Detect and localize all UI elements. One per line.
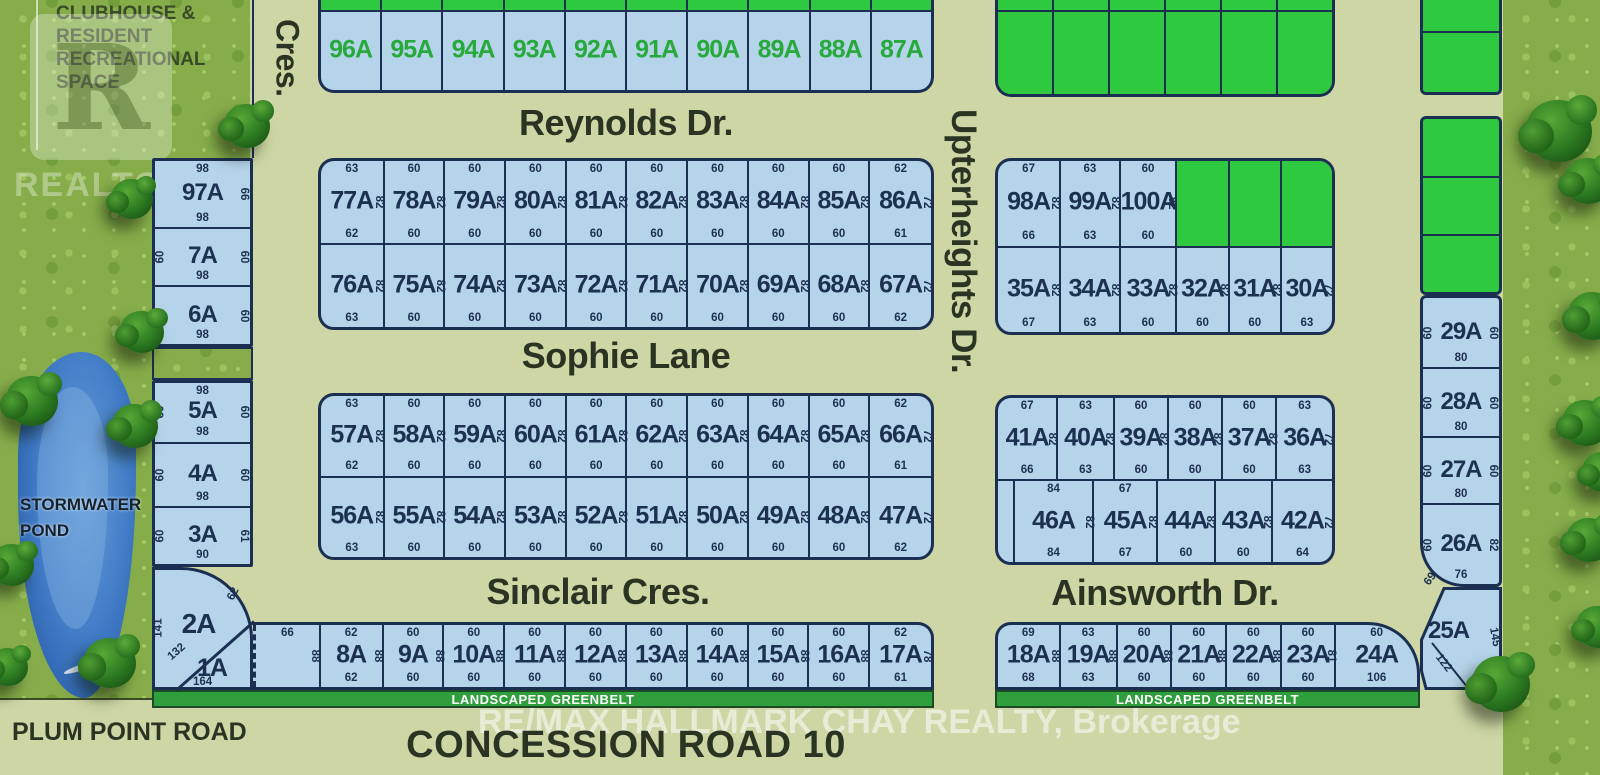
lot-90a: 90A	[686, 12, 747, 90]
lot-dimension: 60	[1177, 318, 1227, 330]
lot-cell	[1423, 234, 1499, 292]
greenbelt-strip-row	[321, 0, 931, 10]
tree-icon	[111, 179, 153, 219]
lot-cell	[1220, 0, 1276, 10]
lot-row-98a-100a: 6798A82666399A826360100A8260	[998, 161, 1332, 246]
tree-icon	[0, 648, 28, 686]
lot-33a: 33A8260	[1119, 248, 1176, 333]
lot-dimension: 60	[688, 313, 747, 325]
lot-dimension: 63	[1277, 465, 1332, 477]
lot-dimension: 60	[385, 313, 444, 325]
lot-col-29a-26a: 29A60608028A60608027A60608026A608276	[1423, 298, 1499, 584]
lot-col-green	[1423, 119, 1499, 292]
block-18a-24a: 6918A88686319A88636020A88606021A88606022…	[995, 622, 1420, 690]
block-98a-30a: 6798A82666399A826360100A8260 35A826734A8…	[995, 158, 1335, 335]
lot-81a: 6081A8260	[565, 161, 626, 243]
lot-dimension: 72	[921, 196, 933, 209]
lot-col-5a-3a: 985A6060984A6060983A606190	[155, 383, 250, 564]
lot-dimension: 60	[810, 313, 869, 325]
lot-dimension: 60	[238, 309, 250, 322]
lot-58a: 6058A8260	[383, 396, 444, 476]
lot-dimension: 98	[155, 164, 250, 176]
lot-28a: 28A606080	[1423, 367, 1499, 436]
greenbelt-strip-row	[998, 0, 1332, 10]
lot-dimension: 60	[505, 628, 564, 640]
lot-22a: 6022A8860	[1225, 625, 1280, 687]
lot-96a	[321, 0, 380, 10]
lot-9a: 609A8860	[382, 625, 443, 687]
lot-dimension: 60	[1487, 396, 1499, 409]
lot-80a: 6080A8260	[504, 161, 565, 243]
tree-icon	[6, 376, 58, 426]
lot-number: 92A	[566, 35, 625, 64]
lot-dimension: 60	[627, 461, 686, 473]
lot-19a: 6319A8863	[1059, 625, 1116, 687]
lot-52a: 52A8260	[565, 478, 626, 558]
lot-3a: 3A606190	[155, 506, 250, 564]
tree-icon	[1472, 656, 1530, 712]
lot-76a: 76A8263	[321, 245, 383, 327]
lot-dimension: 60	[567, 164, 626, 176]
tree-icon	[1564, 158, 1600, 204]
lot-89a	[747, 0, 808, 10]
lot-number: 95A	[382, 35, 441, 64]
lot-row-8a-17a: 6688628A8862609A88606010A88606011A886060…	[253, 625, 931, 687]
block-29a-26a: 29A60608028A60608027A60608026A608276	[1420, 295, 1502, 587]
stormwater-pond-label: STORMWATER POND	[20, 492, 141, 543]
lot-55a: 55A8260	[383, 478, 444, 558]
lot-dimension: 63	[1061, 673, 1116, 685]
lot-row-96a-87a: 96A95A94A93A92A91A90A89A88A87A	[321, 10, 931, 90]
lot-cell	[1423, 31, 1499, 92]
lot-row-77a-86a: 6377A82626078A82606079A82606080A82606081…	[321, 161, 931, 243]
lot-95a	[380, 0, 441, 10]
lot-20a: 6020A8860	[1116, 625, 1171, 687]
lot-86a: 6286A7261	[868, 161, 931, 243]
lot-42a: 42A7264	[1271, 481, 1332, 562]
lot-dimension: 60	[809, 673, 868, 685]
lot-59a: 6059A8260	[443, 396, 504, 476]
lot-dimension: 60	[156, 469, 168, 482]
lot-40a: 6340A8263	[1056, 398, 1113, 479]
lot-8a: 628A8862	[319, 625, 382, 687]
lot-cell: 6688	[253, 625, 319, 687]
lot-10a: 6010A8860	[442, 625, 503, 687]
lot-number: 96A	[321, 35, 380, 64]
lot-dimension: 60	[1115, 465, 1167, 477]
lot-dimension: 62	[870, 399, 931, 411]
lot-32a: 32A8260	[1175, 248, 1227, 333]
lot-row-green-north	[998, 10, 1332, 94]
lot-dimension: 60	[749, 461, 808, 473]
lot-6a: 6A606098	[155, 285, 250, 344]
lot-dimension: 98	[155, 492, 250, 504]
street-sinclair: Sinclair Cres.	[290, 570, 906, 614]
lot-49a: 49A8260	[747, 478, 808, 558]
lot-dimension: 60	[445, 543, 504, 555]
lot-dimension: 60	[445, 164, 504, 176]
lot-cell	[1108, 0, 1164, 10]
lot-dimension: 60	[506, 313, 565, 325]
lot-dimension: 60	[1121, 318, 1176, 330]
lot-cell	[1276, 12, 1332, 94]
block-corner-2a-1a: 2A 1A 141 132 62 164	[152, 567, 253, 690]
lot-dimension: 60	[567, 461, 626, 473]
street-reynolds: Reynolds Dr.	[318, 100, 934, 146]
tree-icon	[84, 638, 136, 688]
lot-row-41a-36a: 6741A82666340A82636039A82606038A82606037…	[998, 398, 1332, 479]
lot-dimension: 60	[749, 229, 808, 241]
lot-row-56a-47a: 56A826355A826054A826053A826052A826051A82…	[321, 476, 931, 558]
lot-row-18a-24a: 6918A88686319A88636020A88606021A88606022…	[998, 625, 1417, 687]
lot-dimension: 60	[809, 628, 868, 640]
lot-dimension: 61	[870, 229, 931, 241]
lot-35a: 35A8267	[998, 248, 1059, 333]
lot-dimension: 98	[155, 271, 250, 283]
lot-dimension: 63	[1282, 318, 1332, 330]
lot-dimension: 60	[627, 229, 686, 241]
lot-dimension: 66	[998, 231, 1059, 243]
lot-dimension: 62	[870, 164, 931, 176]
lot-dimension: 60	[1172, 673, 1225, 685]
lot-56a: 56A8263	[321, 478, 383, 558]
lot-dimension: 63	[1061, 231, 1119, 243]
lot-dimension: 60	[1118, 673, 1171, 685]
lot-83a: 6083A8260	[686, 161, 747, 243]
lot-dimension: 66	[998, 465, 1056, 477]
lot-57a: 6357A8262	[321, 396, 383, 476]
block-right-north-green	[995, 0, 1335, 97]
lot-cell	[1423, 176, 1499, 235]
lot-row-46a-42a: 8446A82846745A826744A826043A826042A7264	[998, 479, 1332, 562]
lot-row-57a-66a: 6357A82626058A82606059A82606060A82606061…	[321, 396, 931, 476]
lot-94a: 94A	[441, 12, 502, 90]
lot-dimension: 67	[998, 401, 1056, 413]
lot-dimension: 62	[321, 628, 382, 640]
lot-dimension: 63	[321, 313, 383, 325]
lot-dimension: 63	[1061, 628, 1116, 640]
lot-dimension: 72	[921, 280, 933, 293]
lot-cell	[1108, 12, 1164, 94]
tree-icon	[120, 311, 164, 353]
lot-79a: 6079A8260	[443, 161, 504, 243]
lot-dimension: 60	[688, 543, 747, 555]
tree-icon	[1576, 606, 1600, 648]
lot-dimension: 60	[1115, 401, 1167, 413]
lot-89a: 89A	[747, 12, 808, 90]
lot-dimension: 60	[385, 399, 444, 411]
lot-dimension: 60	[385, 543, 444, 555]
tree-icon	[112, 404, 158, 448]
lot-cell	[1423, 0, 1499, 31]
lot-dimension: 60	[1336, 628, 1417, 640]
lot-64a: 6064A8260	[747, 396, 808, 476]
lot-dimension: 62	[870, 543, 931, 555]
lot-dimension: 106	[1336, 673, 1417, 685]
dim-62: 62	[225, 586, 242, 603]
lot-dimension: 60	[445, 461, 504, 473]
lot-84a: 6084A8260	[747, 161, 808, 243]
lot-51a: 51A8260	[625, 478, 686, 558]
lot-dimension: 60	[1169, 401, 1221, 413]
street-cres: Cres.	[256, 4, 318, 112]
lot-13a: 6013A8860	[625, 625, 686, 687]
lot-dimension: 62	[870, 628, 931, 640]
lot-dimension: 67	[998, 164, 1059, 176]
lot-dimension: 60	[688, 628, 747, 640]
tree-icon	[1568, 292, 1600, 340]
lot-26a: 26A608276	[1423, 503, 1499, 584]
lot-dimension: 60	[1424, 326, 1436, 339]
lot-88a: 88A	[809, 12, 870, 90]
lot-dimension: 60	[688, 399, 747, 411]
lot-dimension: 60	[567, 399, 626, 411]
tree-icon	[224, 104, 270, 148]
lot-45a: 6745A8267	[1092, 481, 1156, 562]
lot-dimension: 62	[321, 673, 382, 685]
lot-dimension: 80	[1423, 353, 1499, 365]
lot-dimension: 78	[921, 650, 933, 663]
lot-number: 87A	[872, 35, 931, 64]
lot-dimension: 61	[870, 673, 931, 685]
lot-dimension: 62	[321, 461, 383, 473]
street-upterheights: Upterheights Dr.	[931, 88, 995, 394]
lot-dimension: 72	[1322, 283, 1334, 296]
lot-dimension: 60	[506, 229, 565, 241]
lot-dimension: 60	[156, 251, 168, 264]
street-sophie: Sophie Lane	[318, 333, 934, 379]
lot-34a: 34A8263	[1059, 248, 1119, 333]
lot-dimension: 60	[445, 229, 504, 241]
lot-dimension: 60	[627, 628, 686, 640]
lot-dimension: 69	[998, 628, 1059, 640]
lot-dimension: 60	[688, 461, 747, 473]
lot-dimension: 60	[445, 399, 504, 411]
lot-number: 5A	[155, 397, 250, 425]
lot-100a: 60100A8260	[1119, 161, 1176, 246]
lot-dimension: 63	[1058, 401, 1113, 413]
lot-dimension: 64	[1273, 548, 1332, 560]
lot-dimension: 62	[870, 313, 931, 325]
lot-63a: 6063A8260	[686, 396, 747, 476]
lot-dimension: 60	[505, 673, 564, 685]
lot-dimension: 60	[1282, 628, 1335, 640]
lot-dimension: 60	[1230, 318, 1280, 330]
lot-number: 4A	[155, 460, 250, 488]
tree-icon	[0, 544, 34, 586]
lot-number: 6A	[155, 300, 250, 328]
lot-dimension: 60	[1487, 464, 1499, 477]
lot-dimension: 60	[688, 164, 747, 176]
lot-dimension: 98	[155, 386, 250, 398]
lot-dimension: 60	[627, 543, 686, 555]
lot-dimension: 60	[1121, 164, 1176, 176]
lot-cell	[998, 0, 1052, 10]
lot-27a: 27A606080	[1423, 436, 1499, 503]
lot-dimension: 60	[384, 628, 443, 640]
lot-dimension: 60	[749, 399, 808, 411]
block-sophie-sinclair: 6357A82626058A82606059A82606060A82606061…	[318, 393, 934, 560]
lot-cell	[1220, 12, 1276, 94]
lot-dimension: 60	[567, 229, 626, 241]
lot-dimension: 60	[1227, 628, 1280, 640]
lot-62a: 6062A8260	[625, 396, 686, 476]
lot-dimension: 60	[506, 461, 565, 473]
lot-number: 24A	[1336, 640, 1417, 669]
block-41a-42a: 6741A82666340A82636039A82606038A82606037…	[995, 395, 1335, 565]
lot-dimension: 60	[1424, 538, 1436, 551]
lot-47a: 47A7262	[868, 478, 931, 558]
lot-50a: 50A8260	[686, 478, 747, 558]
lot-46a: 8446A8284	[1013, 481, 1093, 562]
grass-walkway	[152, 347, 253, 380]
lot-dimension: 90	[155, 550, 250, 562]
lot-48a: 48A8260	[808, 478, 869, 558]
lot-dimension: 60	[627, 164, 686, 176]
lot-dimension: 60	[627, 673, 686, 685]
lot-dimension: 60	[238, 406, 250, 419]
lot-dimension: 72	[921, 511, 933, 524]
lot-dimension: 60	[385, 461, 444, 473]
lot-29a: 29A606080	[1423, 298, 1499, 367]
block-bottom-left-row: 6688628A8862609A88606010A88606011A886060…	[253, 622, 934, 690]
lot-dimension: 66	[256, 628, 319, 640]
lot-17a: 6217A7861	[868, 625, 931, 687]
lot-21a: 6021A8860	[1170, 625, 1225, 687]
lot-dimension: 67	[1094, 484, 1156, 496]
lot-77a: 6377A8262	[321, 161, 383, 243]
lot-dimension: 60	[238, 469, 250, 482]
lot-dimension: 60	[1227, 673, 1280, 685]
lot-dimension: 63	[1061, 318, 1119, 330]
lot-number: 88A	[811, 35, 870, 64]
lot-39a: 6039A8260	[1113, 398, 1167, 479]
lot-dimension: 60	[567, 543, 626, 555]
lot-30a: 30A7263	[1280, 248, 1332, 333]
lot-67a: 67A7262	[868, 245, 931, 327]
lot-4a: 4A606098	[155, 442, 250, 506]
lot-dimension: 60	[506, 543, 565, 555]
lot-73a: 73A8260	[504, 245, 565, 327]
lot-97a: 9897A6698	[155, 161, 250, 227]
lot-25a: 25A	[1428, 617, 1469, 645]
tree-icon	[1562, 400, 1600, 446]
lot-14a: 6014A8860	[686, 625, 747, 687]
dim-164: 164	[193, 676, 212, 688]
lot-dimension: 82	[1487, 538, 1499, 551]
lot-65a: 6065A8260	[808, 396, 869, 476]
lot-cell	[1276, 0, 1332, 10]
lot-dimension: 60	[627, 313, 686, 325]
lot-dimension: 60	[506, 164, 565, 176]
lot-36a: 6336A7263	[1275, 398, 1332, 479]
lot-row-35a-30a: 35A826734A826333A826032A826031A826030A72…	[998, 246, 1332, 333]
lot-43a: 43A8260	[1214, 481, 1271, 562]
lot-54a: 54A8260	[443, 478, 504, 558]
lot-dimension: 60	[444, 628, 503, 640]
lot-82a: 6082A8260	[625, 161, 686, 243]
lot-dimension: 67	[1094, 548, 1156, 560]
lot-72a: 72A8260	[565, 245, 626, 327]
lot-cell	[1280, 161, 1332, 246]
lot-15a: 6015A8860	[747, 625, 808, 687]
lot-dimension: 60	[1118, 628, 1171, 640]
lot-88a	[809, 0, 870, 10]
lot-number: 93A	[505, 35, 564, 64]
lot-dimension: 63	[1061, 164, 1119, 176]
lot-78a: 6078A8260	[383, 161, 444, 243]
lot-7a: 7A606098	[155, 227, 250, 285]
lot-5a: 985A606098	[155, 383, 250, 442]
block-far-right-green-2	[1420, 116, 1502, 295]
subdivision-site-plan: STORMWATER POND CLUBHOUSE & RESIDENT REC…	[0, 0, 1600, 775]
lot-11a: 6011A8860	[503, 625, 564, 687]
lot-18a: 6918A8868	[998, 625, 1059, 687]
lot-dimension: 60	[749, 543, 808, 555]
lot-dimension: 80	[1423, 422, 1499, 434]
lot-dimension: 61	[870, 461, 931, 473]
lot-dimension: 60	[688, 229, 747, 241]
lot-dimension: 60	[1216, 548, 1271, 560]
lot-87a	[870, 0, 931, 10]
dim-141: 141	[153, 618, 165, 637]
lot-number: 91A	[627, 35, 686, 64]
lot-95a: 95A	[380, 12, 441, 90]
lot-dimension: 60	[1158, 548, 1213, 560]
lot-61a: 6061A8260	[565, 396, 626, 476]
lot-number: 46A	[1015, 506, 1093, 535]
street-ainsworth: Ainsworth Dr.	[995, 571, 1335, 615]
lot-dimension: 62	[321, 229, 383, 241]
lot-94a	[441, 0, 502, 10]
lot-dimension: 60	[810, 229, 869, 241]
lot-93a: 93A	[503, 12, 564, 90]
lot-dimension: 60	[506, 399, 565, 411]
lot-dimension: 60	[1223, 401, 1275, 413]
lot-74a: 74A8260	[443, 245, 504, 327]
lot-98a: 6798A8266	[998, 161, 1059, 246]
lot-dimension: 60	[1424, 464, 1436, 477]
lot-dimension: 72	[921, 429, 933, 442]
lot-90a	[686, 0, 747, 10]
lot-number: 89A	[749, 35, 808, 64]
lot-91a	[625, 0, 686, 10]
lot-col-green	[1423, 0, 1499, 92]
tree-icon	[1566, 518, 1600, 562]
dim-132: 132	[165, 641, 187, 663]
lot-cell	[1052, 12, 1108, 94]
lot-dimension: 60	[1121, 231, 1176, 243]
lot-60a: 6060A8260	[504, 396, 565, 476]
lot-dimension: 60	[627, 399, 686, 411]
lot-dimension: 60	[567, 313, 626, 325]
block-reynolds-sophie: 6377A82626078A82606079A82606080A82606081…	[318, 158, 934, 330]
plum-point-road-label: PLUM POINT ROAD	[12, 718, 247, 747]
tree-icon	[1526, 100, 1592, 162]
lot-dimension: 60	[566, 628, 625, 640]
lot-85a: 6085A8260	[808, 161, 869, 243]
lot-cell	[998, 481, 1013, 562]
lot-cell	[1052, 0, 1108, 10]
lot-dimension: 60	[1487, 326, 1499, 339]
lot-dimension: 63	[321, 399, 383, 411]
lot-dimension: 63	[321, 543, 383, 555]
lot-number: 97A	[155, 179, 250, 207]
lot-44a: 44A8260	[1156, 481, 1213, 562]
lot-cell	[1423, 119, 1499, 176]
lot-dimension: 60	[1169, 465, 1221, 477]
lot-70a: 70A8260	[686, 245, 747, 327]
